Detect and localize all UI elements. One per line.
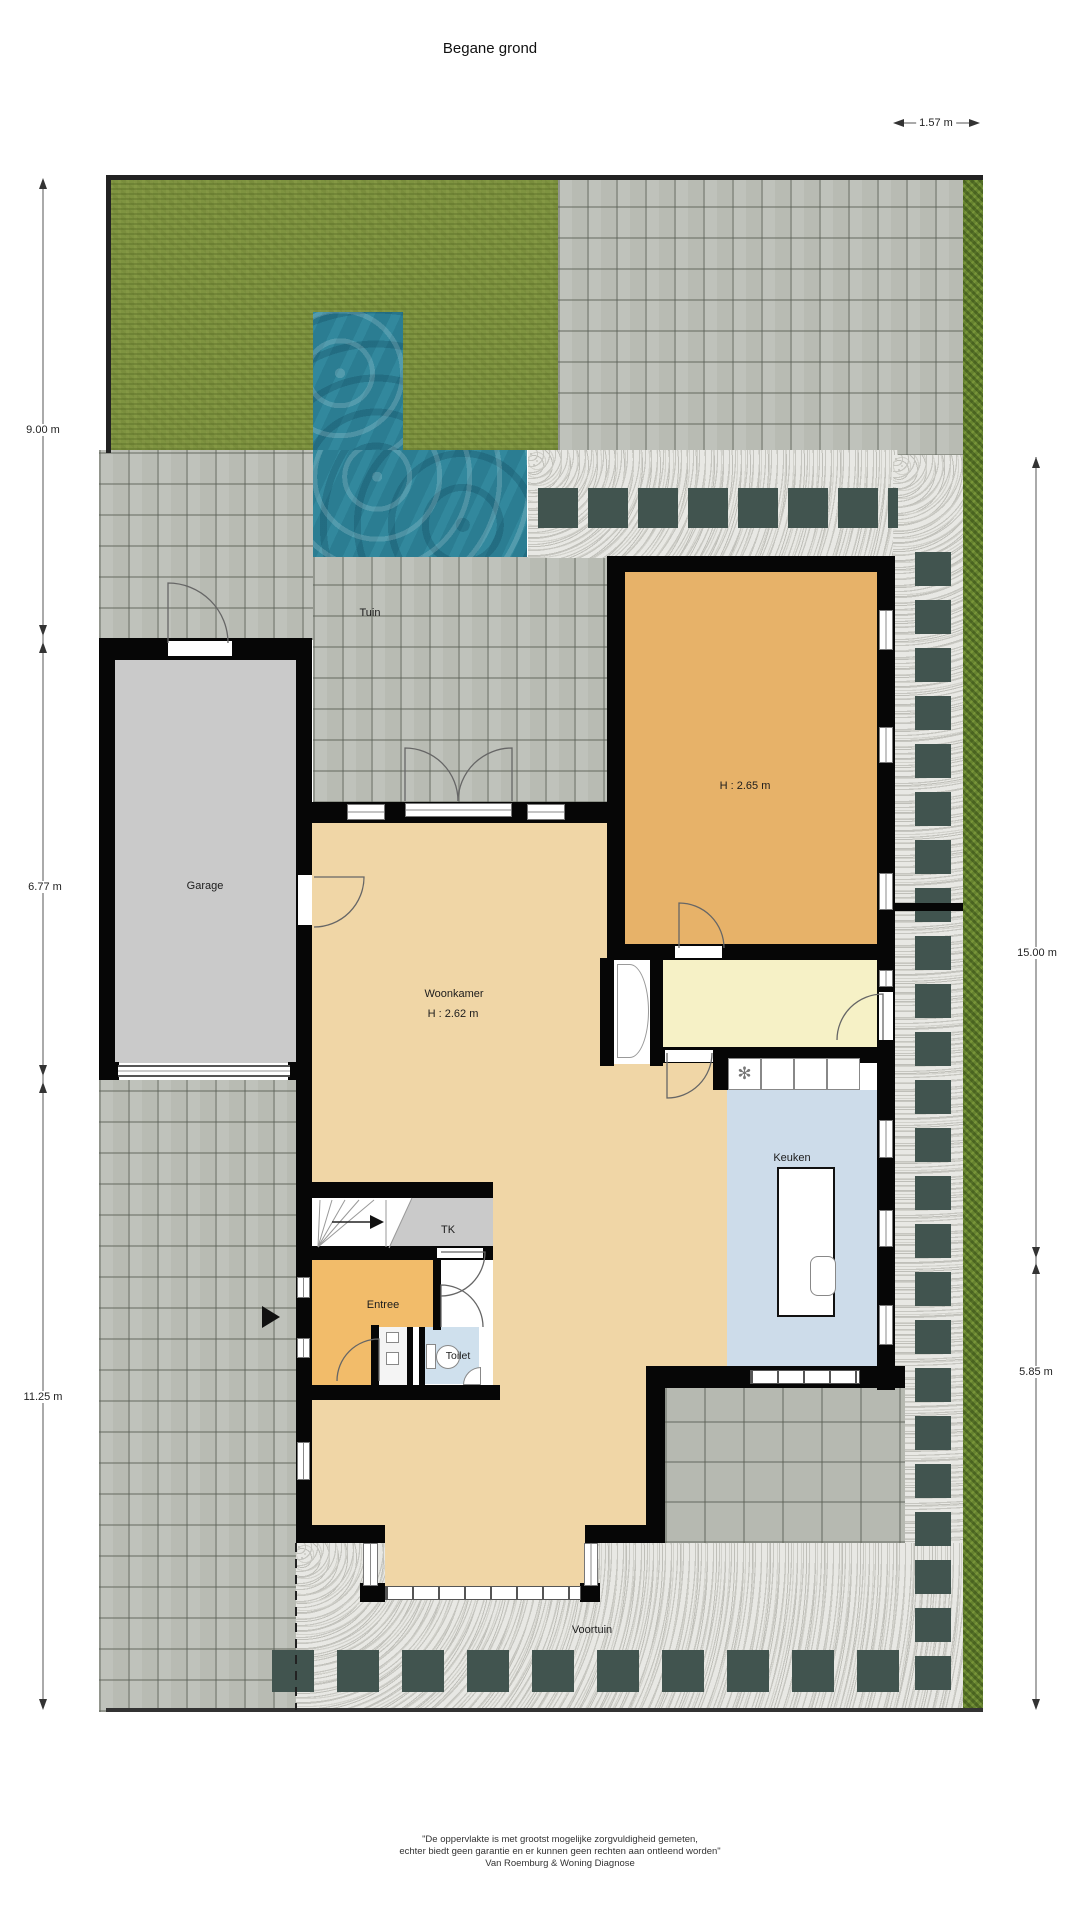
stair-treads (318, 1198, 412, 1248)
dimension-lines (43, 123, 1036, 1708)
door-arcs (168, 583, 883, 1381)
french-door-arc-left (405, 748, 458, 801)
disclaimer-line-3: Van Roemburg & Woning Diagnose (140, 1858, 980, 1870)
label-woonkamer: Woonkamer (424, 988, 483, 1000)
side-door-arc (837, 994, 883, 1040)
entrance-arrow-icon (262, 1306, 280, 1328)
backroom-door-arc (679, 903, 724, 948)
disclaimer: "De oppervlakte is met grootst mogelijke… (140, 1834, 980, 1870)
label-entree: Entree (367, 1299, 399, 1311)
plan-annotations-layer (0, 0, 1080, 1920)
label-keuken: Keuken (773, 1152, 810, 1164)
label-woonkamer-height: H : 2.62 m (428, 1008, 479, 1020)
label-tk: TK (441, 1224, 455, 1236)
dimension-left-bottom: 11.25 m (21, 1391, 66, 1403)
dimension-top: 1.57 m (916, 117, 956, 129)
dimension-arrowheads (39, 119, 1040, 1710)
label-backroom-height: H : 2.65 m (720, 780, 771, 792)
yellowroom-door-arc (667, 1053, 712, 1098)
hall-door-arc-1 (441, 1252, 485, 1296)
dimension-left-mid: 6.77 m (25, 881, 65, 893)
garage-door-arc (314, 877, 364, 927)
dimension-right-bottom: 5.85 m (1016, 1366, 1056, 1378)
floorplan-page: ✻ (0, 0, 1080, 1920)
stairs-direction-arrow-icon (332, 1215, 384, 1229)
disclaimer-line-1: "De oppervlakte is met grootst mogelijke… (140, 1834, 980, 1846)
page-title: Begane grond (350, 40, 630, 57)
garden-gate-arc (168, 583, 228, 643)
label-tuin: Tuin (360, 607, 381, 619)
label-garage: Garage (187, 880, 224, 892)
dimension-left-top: 9.00 m (23, 424, 63, 436)
disclaimer-line-2: echter biedt geen garantie en er kunnen … (140, 1846, 980, 1858)
dimension-right-top: 15.00 m (1014, 947, 1060, 959)
label-voortuin: Voortuin (572, 1624, 612, 1636)
vestibule-door-arc (337, 1339, 379, 1381)
label-toilet: Toilet (446, 1350, 471, 1362)
french-door-arc-right (458, 748, 512, 801)
